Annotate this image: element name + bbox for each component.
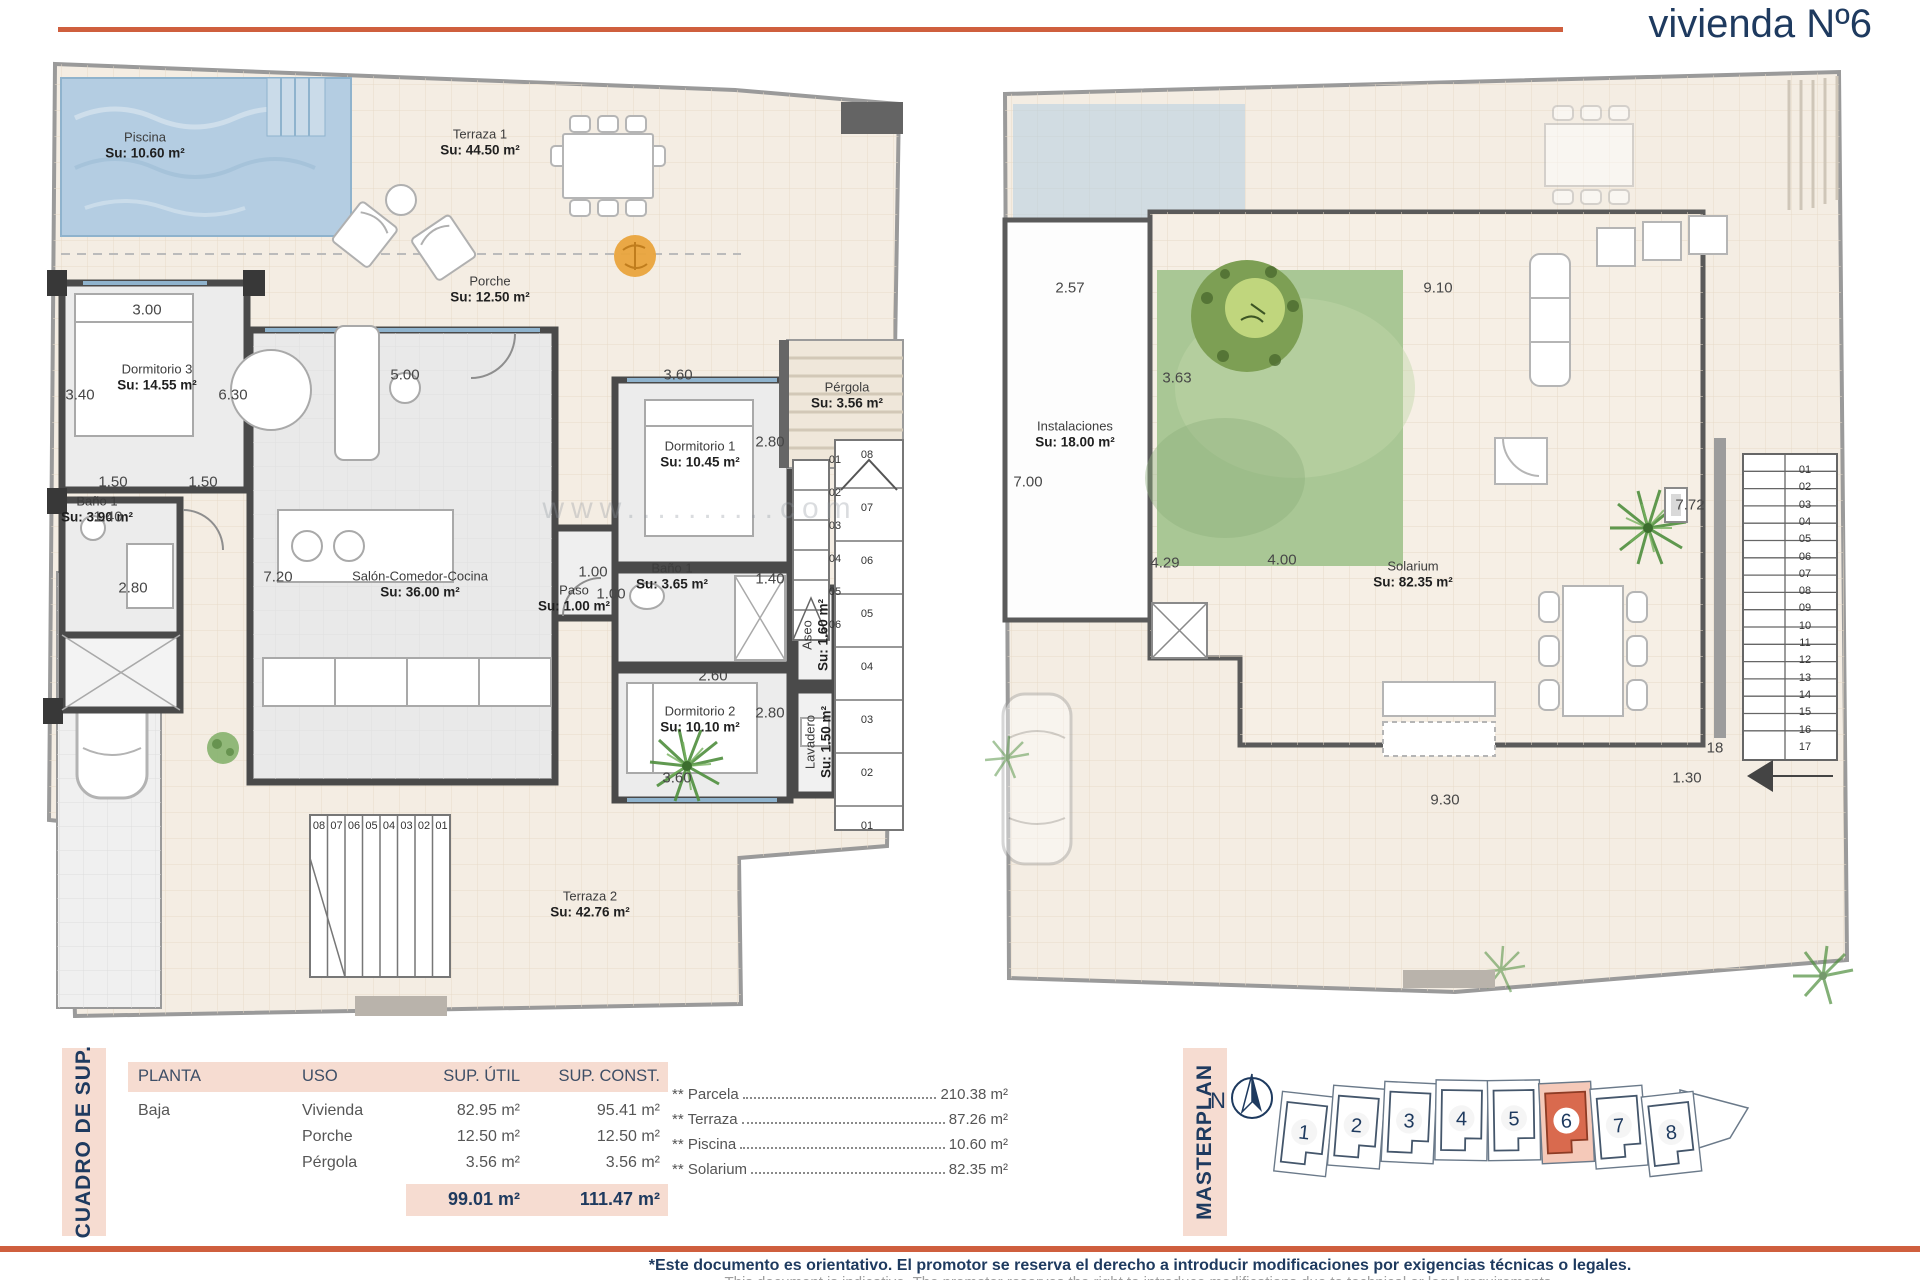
- footer-disclaimer-en: This document is indicative. The promote…: [0, 1274, 1920, 1280]
- surface-table: PLANTA USO SUP. ÚTIL SUP. CONST. BajaViv…: [128, 1056, 668, 1246]
- compass-icon: [1232, 1074, 1272, 1118]
- summary-row: ** Terraza87.26 m²: [672, 1111, 1008, 1136]
- surface-table-row: BajaVivienda82.95 m²95.41 m²: [128, 1102, 668, 1128]
- masterplan-unit-4: 4: [1435, 1080, 1488, 1161]
- summary-row: ** Solarium82.35 m²: [672, 1161, 1008, 1186]
- ground-floor-plan: PiscinaSu: 10.60 m²Terraza 1Su: 44.50 m²…: [35, 58, 925, 1018]
- masterplan-unit-7: 7: [1590, 1085, 1648, 1169]
- surface-table-row: Pérgola3.56 m²3.56 m²: [128, 1154, 668, 1180]
- surface-table-row: Porche12.50 m²12.50 m²: [128, 1128, 668, 1154]
- col-planta: PLANTA: [138, 1067, 201, 1086]
- col-sup-const: SUP. CONST.: [532, 1067, 660, 1086]
- masterplan-unit-3: 3: [1381, 1081, 1437, 1163]
- pool: [61, 78, 351, 236]
- masterplan-unit-1: 1: [1274, 1091, 1334, 1176]
- svg-text:4: 4: [1456, 1108, 1467, 1130]
- masterplan-drawing: N 12345678: [1200, 1062, 1760, 1182]
- surface-table-totals: 99.01 m² 111.47 m²: [406, 1184, 668, 1216]
- cuadro-band-label: CUADRO DE SUP.: [72, 1045, 96, 1238]
- masterplan-unit-8: 8: [1641, 1091, 1701, 1176]
- masterplan-unit-2: 2: [1327, 1085, 1385, 1169]
- solarium-plan: InstalacionesSu: 18.00 m²SolariumSu: 82.…: [985, 58, 1875, 1018]
- summary-list: ** Parcela210.38 m²** Terraza87.26 m²** …: [672, 1086, 1008, 1186]
- ground-floor-drawing: [35, 58, 925, 1018]
- masterplan-unit-6: 6: [1539, 1081, 1595, 1163]
- summary-row: ** Piscina10.60 m²: [672, 1136, 1008, 1161]
- summary-row: ** Parcela210.38 m²: [672, 1086, 1008, 1111]
- cuadro-band: CUADRO DE SUP.: [62, 1048, 106, 1236]
- bottom-stairs: [310, 815, 450, 977]
- total-const: 111.47 m²: [530, 1189, 660, 1210]
- footer-rule: [0, 1246, 1920, 1252]
- header-rule: [58, 27, 1563, 32]
- total-util: 99.01 m²: [406, 1189, 520, 1210]
- svg-text:5: 5: [1508, 1108, 1519, 1130]
- page-title: vivienda Nº6: [1648, 2, 1872, 47]
- instalaciones-room: [1005, 220, 1150, 620]
- svg-text:6: 6: [1560, 1110, 1572, 1132]
- shrub: [207, 732, 239, 764]
- svg-text:7: 7: [1613, 1115, 1626, 1138]
- tree-orange: [614, 235, 656, 277]
- floorplan-sheet: vivienda Nº6: [0, 0, 1920, 1280]
- svg-text:3: 3: [1403, 1110, 1415, 1132]
- surface-table-header: PLANTA USO SUP. ÚTIL SUP. CONST.: [128, 1062, 668, 1092]
- green-roof: [1145, 260, 1415, 566]
- col-uso: USO: [302, 1067, 338, 1086]
- entry-step: [355, 996, 447, 1016]
- col-sup-util: SUP. ÚTIL: [408, 1067, 520, 1086]
- footer-disclaimer-es: *Este documento es orientativo. El promo…: [0, 1257, 1920, 1275]
- solarium-drawing: [985, 58, 1875, 1018]
- masterplan-unit-5: 5: [1487, 1080, 1540, 1161]
- entry-step: [1403, 970, 1495, 988]
- car-below: [1003, 694, 1071, 864]
- watermark: www..........com: [430, 492, 970, 526]
- skylight: [1152, 603, 1207, 658]
- masterplan-units: 12345678: [1274, 1080, 1702, 1177]
- north-label: N: [1210, 1088, 1226, 1113]
- svg-text:2: 2: [1350, 1115, 1363, 1138]
